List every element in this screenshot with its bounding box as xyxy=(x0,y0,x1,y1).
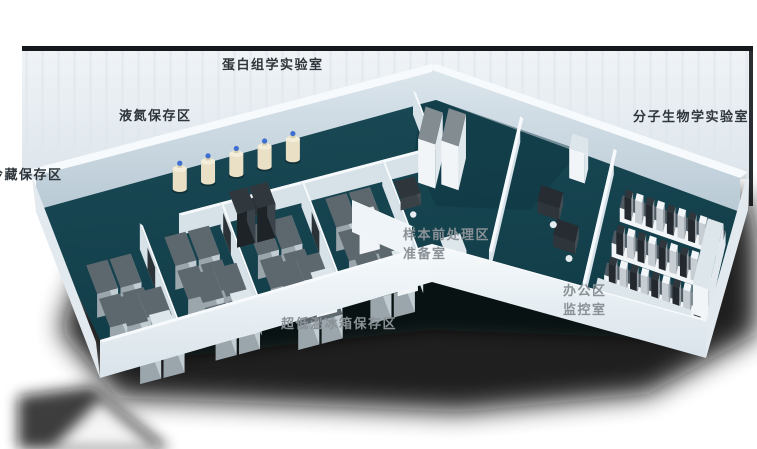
label-liquid-nitrogen-area: 液氮保存区 xyxy=(119,110,192,123)
label-molecular-biology-lab: 分子生物学实验室 xyxy=(633,111,749,124)
label-ult-freezer-area: 超低温冰箱保存区 xyxy=(281,318,397,331)
label-sample-prep-area: 样本前处理区 xyxy=(403,229,490,242)
label-office-area: 办公区 xyxy=(563,285,607,298)
lab-3d-floorplan: 蛋白组学实验室 液氮保存区 冷藏保存区 分子生物学实验室 样本前处理区 准备室 … xyxy=(0,0,757,449)
label-cold-storage-area: 冷藏保存区 xyxy=(0,169,63,182)
label-monitor-room: 监控室 xyxy=(563,304,607,317)
label-prep-room: 准备室 xyxy=(403,248,447,261)
floorplan-rendering xyxy=(0,0,757,449)
label-proteomics-lab: 蛋白组学实验室 xyxy=(222,59,324,72)
